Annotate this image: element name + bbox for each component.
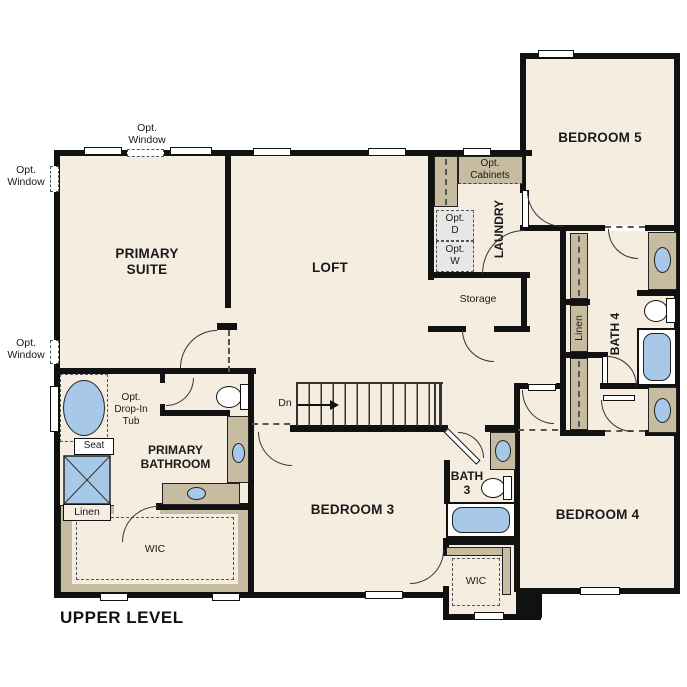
hall-closet: [570, 358, 588, 430]
sink-fixture: [654, 247, 671, 273]
window: [463, 148, 491, 156]
room-label-bedroom4: BEDROOM 4: [535, 507, 660, 523]
opt-dryer-label: Opt. D: [437, 213, 473, 237]
floor-plan: Opt. Cabinets Opt. D Opt. W Linen Seat L…: [0, 0, 687, 687]
toilet-tank: [666, 298, 676, 323]
toilet-bowl: [216, 386, 242, 408]
wall-segment: [217, 323, 237, 330]
toilet-tank: [503, 476, 512, 500]
wall-segment: [225, 150, 231, 308]
stairs-down-label: Dn: [274, 397, 296, 409]
wall-segment: [160, 368, 256, 374]
wall-segment: [514, 383, 528, 389]
stairs-down-arrow: [298, 404, 330, 406]
room-label-storage: Storage: [445, 293, 511, 305]
wic-bedroom3-band: [502, 547, 511, 595]
opening-bedroom4-entry: [518, 429, 558, 431]
opt-drop-in-tub-label: Opt. Drop-In Tub: [106, 392, 156, 427]
wall-segment: [428, 326, 466, 332]
wall-segment: [250, 592, 448, 598]
stairs-down-arrowhead: [330, 400, 339, 410]
opt-drop-in-tub-fixture: [63, 380, 105, 436]
wall-segment: [674, 53, 680, 594]
cabinet-centerline: [445, 159, 447, 205]
wall-segment: [521, 272, 527, 332]
window: [365, 591, 403, 599]
room-label-bath4-wrap: BATH 4: [600, 303, 630, 365]
wall-segment: [485, 425, 517, 432]
wall-segment: [637, 290, 677, 296]
opt-window-top-label: Opt. Window: [118, 122, 176, 147]
linen-primary-label: Linen: [63, 506, 111, 518]
window: [538, 50, 574, 58]
window: [212, 593, 240, 601]
room-label-loft: LOFT: [290, 260, 370, 276]
shower-fixture: [63, 455, 111, 505]
linen-hall-labelwrap: Linen: [564, 302, 594, 354]
wall-segment: [444, 538, 520, 545]
bathtub-fixture: [452, 507, 510, 533]
wic-bedroom3-band: [446, 547, 510, 556]
wall-segment: [160, 374, 165, 383]
room-label-primary-suite: PRIMARY SUITE: [82, 246, 212, 278]
room-label-bath3: BATH 3: [448, 469, 486, 497]
bathtub-fixture: [643, 333, 671, 381]
wall-segment: [645, 225, 680, 231]
window: [100, 593, 128, 601]
toilet-bowl: [644, 300, 668, 322]
wall-segment: [290, 425, 448, 432]
window: [170, 147, 212, 155]
window: [253, 148, 291, 156]
opening-suite-hall: [228, 330, 230, 372]
sink-fixture: [495, 440, 511, 462]
opt-window-marker: [50, 340, 59, 364]
opt-window-left-upper-label: Opt. Window: [2, 164, 50, 189]
sink-fixture: [187, 487, 206, 500]
opt-cabinets-label: Opt. Cabinets: [458, 158, 522, 182]
opt-window-left-lower-label: Opt. Window: [2, 337, 50, 362]
window: [368, 148, 406, 156]
room-label-laundry-wrap: LAUNDRY: [484, 190, 514, 268]
opening-bedroom5-bath4: [605, 226, 645, 228]
toilet-tank: [240, 384, 249, 410]
window: [50, 386, 59, 432]
opt-window-marker: [50, 166, 59, 192]
room-label-bedroom3: BEDROOM 3: [285, 502, 420, 518]
opt-window-marker: [127, 149, 164, 157]
laundry-cabinet: [434, 156, 458, 207]
room-label-laundry: LAUNDRY: [492, 200, 506, 258]
hall-closet: [570, 233, 588, 299]
page-title: UPPER LEVEL: [60, 608, 184, 628]
wall-segment: [494, 326, 530, 332]
wall-segment: [514, 383, 520, 592]
window: [580, 587, 620, 595]
window: [84, 147, 122, 155]
room-label-bath4: BATH 4: [608, 313, 622, 355]
closet-centerline: [578, 236, 580, 296]
seat-label: Seat: [74, 440, 114, 452]
room-label-wic-primary: WIC: [130, 543, 180, 555]
closet-centerline: [578, 361, 580, 427]
window: [474, 612, 504, 620]
opening-hall-bedroom3: [252, 423, 290, 425]
opt-washer-label: Opt. W: [437, 244, 473, 268]
room-label-wic-bedroom3: WIC: [454, 575, 498, 587]
room-label-bedroom5: BEDROOM 5: [540, 130, 660, 146]
sink-fixture: [654, 398, 671, 423]
linen-hall-label: Linen: [573, 315, 585, 341]
stairs-end-rail: [434, 384, 441, 426]
wall-segment: [560, 430, 605, 436]
room-label-primary-bathroom: PRIMARY BATHROOM: [113, 443, 238, 471]
wall-segment: [160, 410, 230, 416]
